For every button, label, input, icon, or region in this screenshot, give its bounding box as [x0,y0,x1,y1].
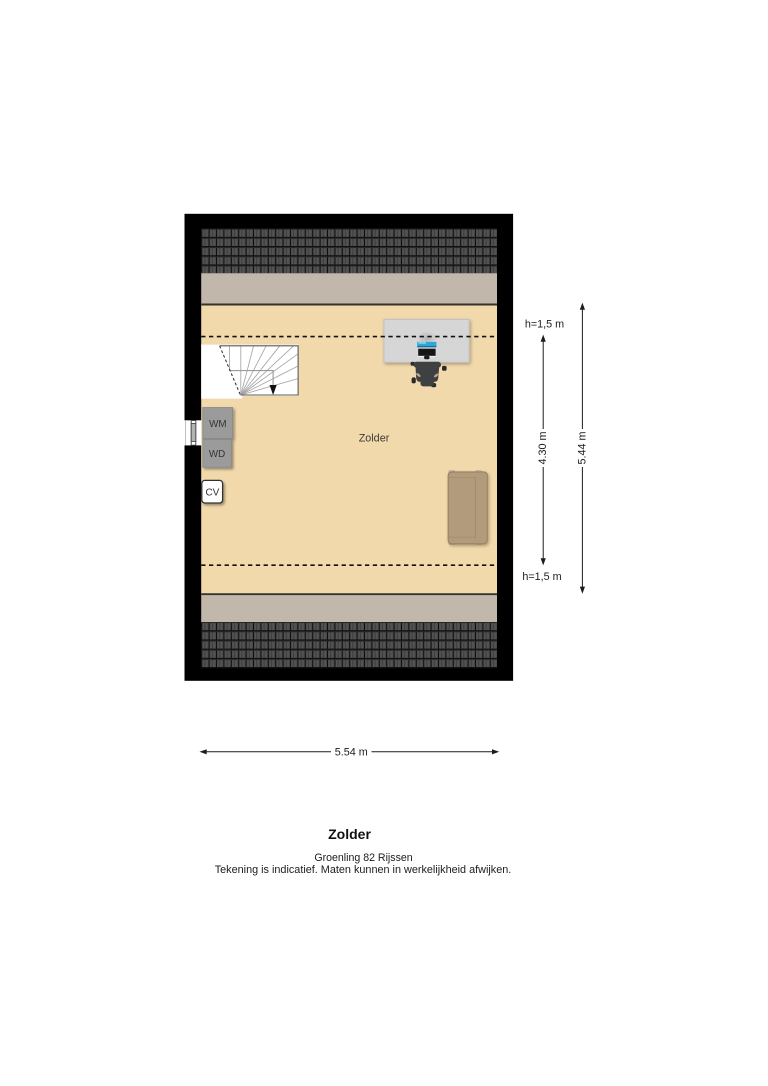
svg-text:4.30 m: 4.30 m [537,431,549,464]
svg-text:5.54 m: 5.54 m [335,747,368,759]
svg-text:Groenling 82 Rijssen: Groenling 82 Rijssen [314,852,412,864]
svg-text:WD: WD [209,449,225,460]
svg-text:CV: CV [205,488,219,499]
svg-text:Tekening is indicatief. Maten: Tekening is indicatief. Maten kunnen in … [215,864,512,876]
svg-text:h=1,5 m: h=1,5 m [522,571,561,583]
svg-text:Zolder: Zolder [328,826,371,842]
svg-text:h=1,5 m: h=1,5 m [525,319,564,331]
svg-text:WM: WM [209,419,226,430]
svg-text:Zolder: Zolder [359,432,390,444]
svg-text:5.44 m: 5.44 m [576,431,588,464]
